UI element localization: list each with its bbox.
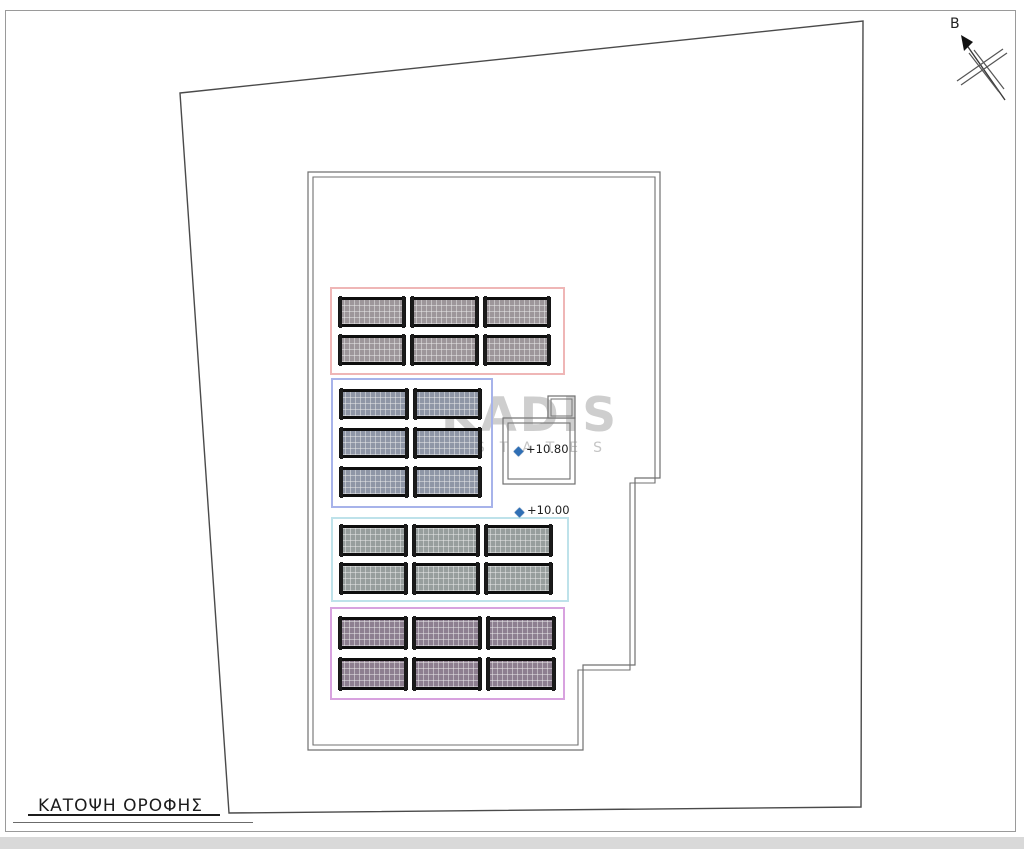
solar-panel <box>410 335 478 365</box>
solar-panel <box>410 297 478 327</box>
solar-panel <box>486 617 556 649</box>
panel-group-upper-middle <box>331 378 493 508</box>
solar-panel <box>412 525 481 556</box>
elevation-marker-roof: +10.00 <box>516 505 570 517</box>
solar-panel <box>339 428 409 458</box>
solar-panel <box>412 563 481 594</box>
panel-group-top <box>330 287 565 375</box>
elevation-value: +10.00 <box>527 505 570 517</box>
solar-panel <box>484 525 553 556</box>
north-arrow-label: B <box>950 16 960 32</box>
solar-panel <box>339 467 409 497</box>
panel-group-bottom <box>330 607 565 700</box>
solar-panel <box>484 563 553 594</box>
solar-panel <box>486 658 556 690</box>
solar-panel <box>413 389 483 419</box>
solar-panel <box>339 563 408 594</box>
solar-panel <box>339 525 408 556</box>
title-underline-secondary <box>13 822 253 823</box>
drawing-title: ΚΑΤΟΨΗ ΟΡΟΦΗΣ <box>38 796 203 816</box>
solar-panel-row <box>339 563 553 594</box>
solar-panel <box>483 297 551 327</box>
panel-group-lower-middle <box>331 517 569 602</box>
title-underline <box>28 814 220 816</box>
solar-panel-row <box>338 297 551 327</box>
solar-panel <box>338 658 408 690</box>
solar-panel-row <box>338 617 556 649</box>
solar-panel-row <box>338 658 556 690</box>
solar-panel <box>412 617 482 649</box>
north-arrow-icon <box>957 35 1007 100</box>
solar-panel-row <box>338 335 551 365</box>
roof-plan-page: KADIS ESTATES B +10.80 +10.00 ΚΑΤΟΨΗ ΟΡΟ… <box>0 0 1024 849</box>
elevation-value: +10.80 <box>526 444 569 456</box>
solar-panel-row <box>339 428 482 458</box>
solar-panel-row <box>339 467 482 497</box>
solar-panel <box>338 297 406 327</box>
solar-panel-row <box>339 525 553 556</box>
solar-panel-row <box>339 389 482 419</box>
solar-panel <box>413 428 483 458</box>
elevation-marker-bulkhead: +10.80 <box>515 444 569 456</box>
solar-panel <box>338 335 406 365</box>
solar-panel <box>483 335 551 365</box>
solar-panel <box>413 467 483 497</box>
elevation-diamond-icon <box>515 507 525 517</box>
solar-panel <box>339 389 409 419</box>
solar-panel <box>338 617 408 649</box>
elevation-diamond-icon <box>514 446 524 456</box>
solar-panel <box>412 658 482 690</box>
